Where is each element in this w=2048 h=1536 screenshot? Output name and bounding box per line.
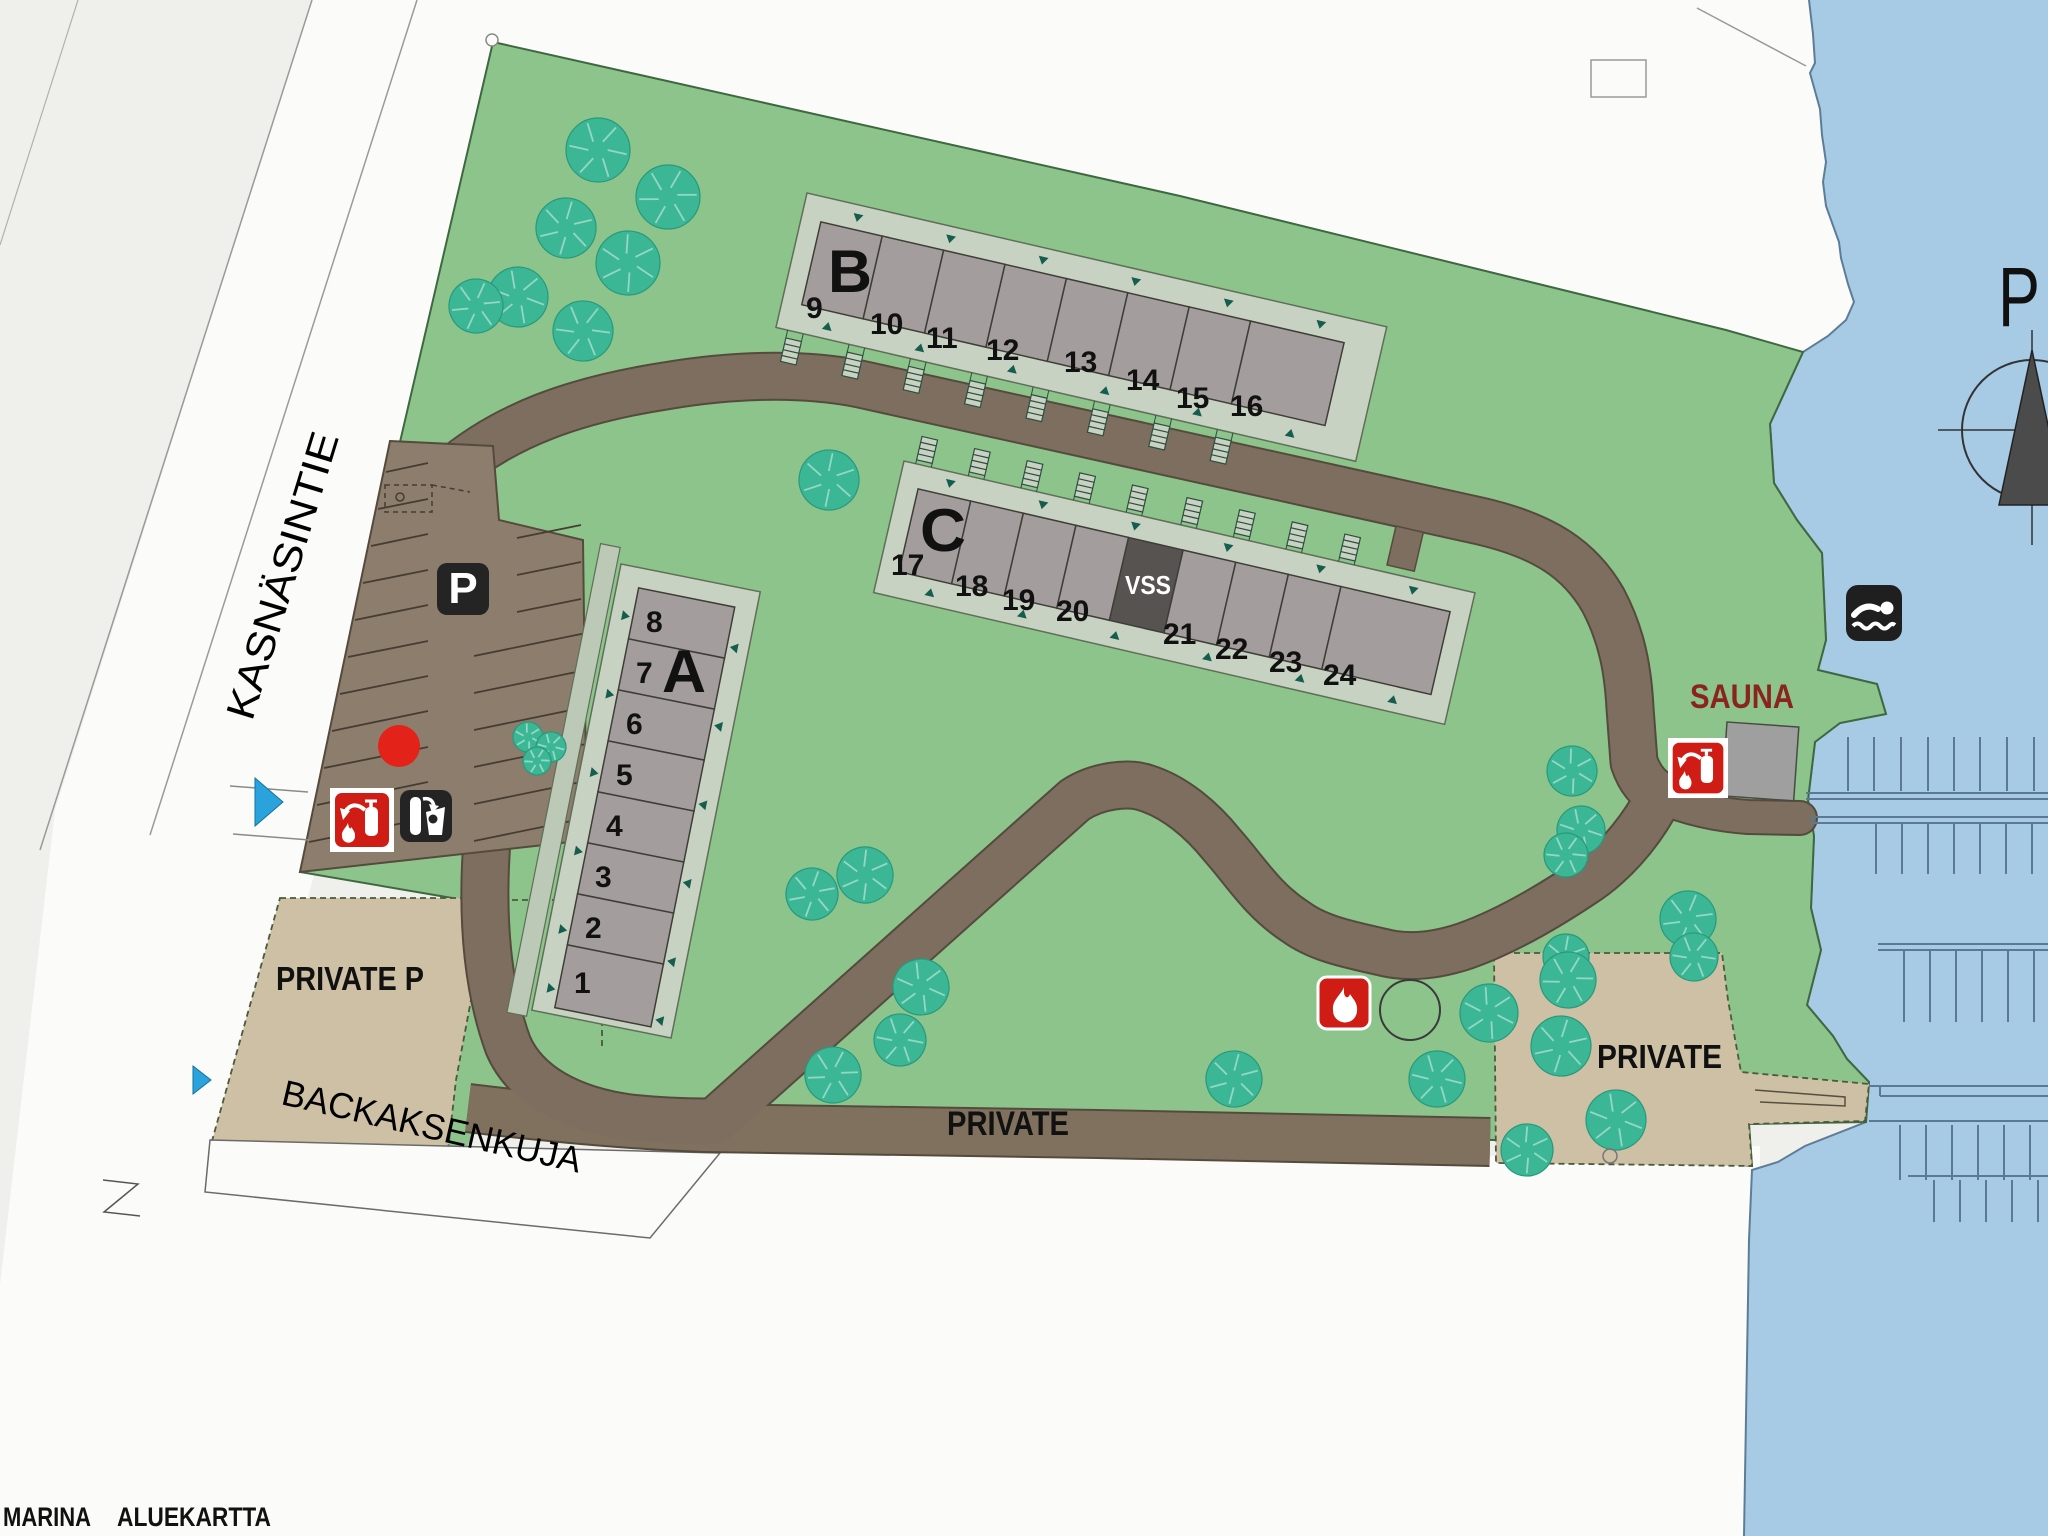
svg-text:2: 2 <box>585 912 602 945</box>
svg-text:14: 14 <box>1126 364 1160 397</box>
svg-text:SAUNA: SAUNA <box>1690 678 1794 716</box>
svg-text:24: 24 <box>1323 659 1357 692</box>
svg-text:13: 13 <box>1064 346 1097 379</box>
svg-text:1: 1 <box>574 967 591 1000</box>
svg-text:18: 18 <box>955 570 988 603</box>
svg-text:23: 23 <box>1269 646 1302 679</box>
svg-text:PRIVATE P: PRIVATE P <box>276 960 424 997</box>
svg-text:21: 21 <box>1163 618 1196 651</box>
svg-text:3: 3 <box>595 861 612 894</box>
svg-text:5: 5 <box>616 759 633 792</box>
svg-text:P: P <box>448 564 477 613</box>
svg-text:6: 6 <box>626 708 643 741</box>
svg-text:PRIVATE: PRIVATE <box>947 1105 1069 1143</box>
svg-text:10: 10 <box>870 308 903 341</box>
svg-text:C: C <box>920 497 966 564</box>
svg-text:16: 16 <box>1230 390 1263 423</box>
svg-text:19: 19 <box>1002 584 1035 617</box>
svg-text:VSS: VSS <box>1125 570 1171 600</box>
svg-text:20: 20 <box>1056 595 1089 628</box>
svg-text:9: 9 <box>806 292 823 325</box>
svg-text:ALUEKARTTA: ALUEKARTTA <box>117 1502 271 1532</box>
svg-text:4: 4 <box>606 810 623 843</box>
svg-text:17: 17 <box>891 549 924 582</box>
svg-text:11: 11 <box>926 322 958 355</box>
svg-text:B: B <box>828 238 872 305</box>
svg-text:8: 8 <box>646 606 663 639</box>
svg-text:P: P <box>1998 250 2040 344</box>
svg-text:12: 12 <box>986 334 1019 367</box>
svg-text:15: 15 <box>1176 382 1209 415</box>
svg-text:A: A <box>662 638 706 705</box>
svg-text:PRIVATE: PRIVATE <box>1597 1038 1722 1075</box>
svg-text:7: 7 <box>636 657 653 690</box>
svg-text:MARINA: MARINA <box>3 1502 91 1532</box>
svg-text:22: 22 <box>1215 633 1248 666</box>
